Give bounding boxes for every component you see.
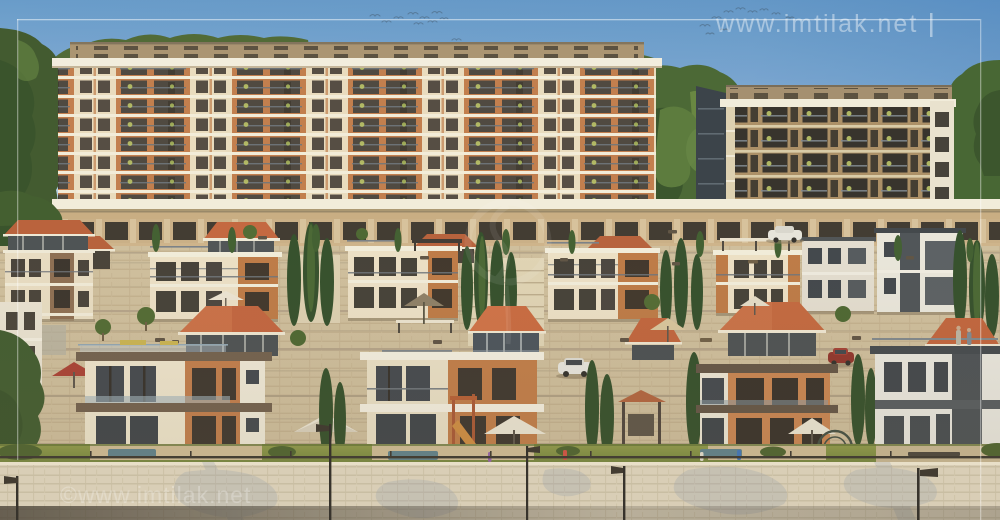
svg-text:www.imtilak.net: www.imtilak.net [715, 10, 918, 38]
svg-text:©www.imtilak.net: ©www.imtilak.net [60, 482, 251, 508]
